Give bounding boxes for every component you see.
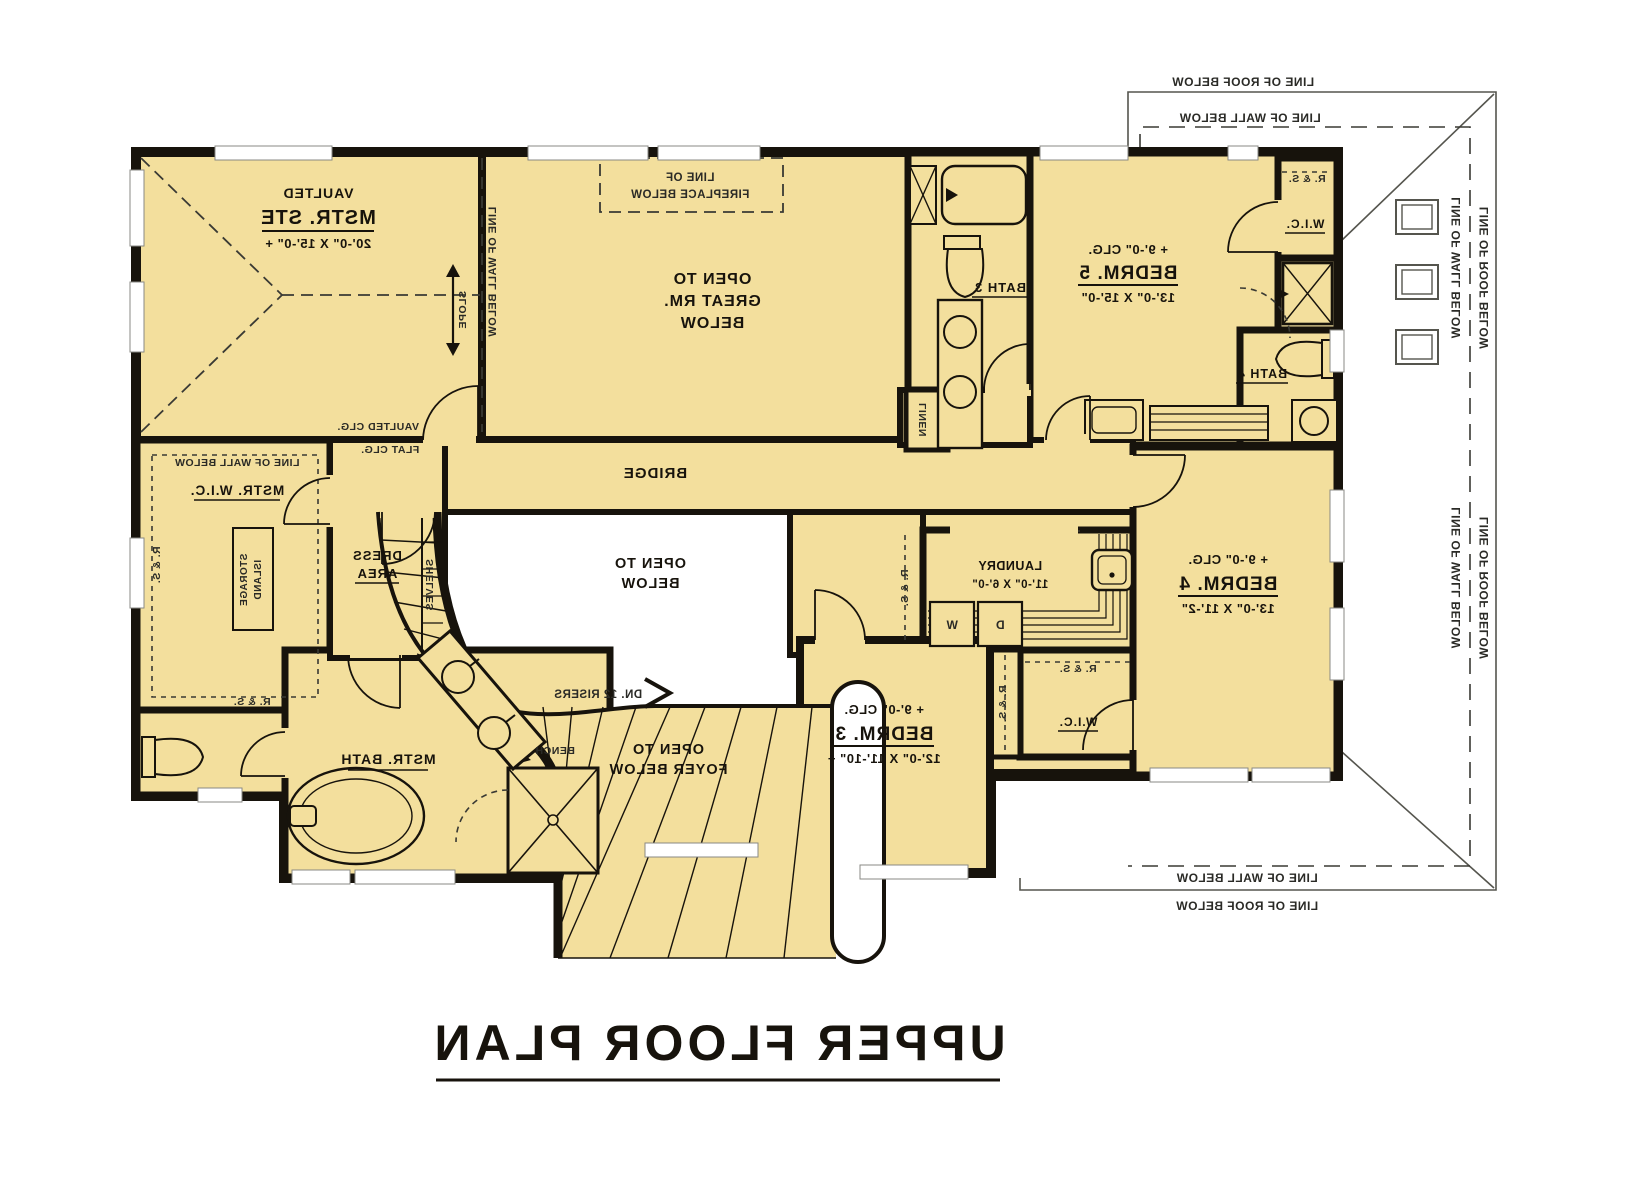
label-wall-below-wic: LINE OF WALL BELOW [175, 457, 300, 469]
room-bridge [390, 440, 1133, 512]
label-greatrm-3: BELOW [680, 315, 745, 332]
label-slope: SLOPE [457, 291, 469, 329]
label-bedrm4-name: BEDRM. 4 [1179, 574, 1278, 595]
label-rs-1: R. & S. [151, 546, 163, 583]
porch-column-icon [1396, 200, 1438, 364]
label-roof-below-right-2: LINE OF ROOF BELOW [1477, 517, 1491, 659]
label-vaulted-clg: VAULTED CLG. [337, 421, 419, 433]
label-fireplace-1: LINE OF [666, 172, 715, 184]
label-openfoyer-2: FOYER BELOW [609, 762, 728, 778]
toilet-icon [142, 737, 203, 777]
label-island: ISLAND [253, 560, 264, 600]
label-rs-4: R. & S. [1059, 663, 1096, 675]
label-bedrm5-dims: 13'-0" X 15'-0" [1081, 290, 1175, 305]
label-flat-clg: FLAT CLG. [361, 444, 420, 456]
label-rs-3: R. & S. [1288, 173, 1325, 185]
label-rs-6: R. & S. [899, 569, 911, 606]
sink-icon [1300, 407, 1328, 435]
label-bedrm3-clg: + 9'-0" CLG. [844, 702, 924, 717]
label-openbelow-1: OPEN TO [614, 556, 686, 572]
sink-icon [944, 376, 976, 408]
label-bridge: BRIDGE [623, 465, 687, 482]
drawing-title: UPPER FLOOR PLAN [430, 1015, 1005, 1080]
label-bedrm5-clg: + 9'-0" CLG. [1088, 242, 1168, 257]
label-greatrm-2: GREAT RM. [663, 293, 761, 310]
floor-plan-drawing: LINE OF ROOF BELOW LINE OF WALL BELOW LI… [0, 0, 1632, 1200]
label-bedrm4-clg: + 9'-0" CLG. [1188, 552, 1268, 567]
label-shelves: SHELVES [424, 559, 436, 611]
label-bedrm3-name: BEDRM. 3 [835, 724, 934, 745]
label-bedrm3-dims: 12'-0" X 11'-10" + [827, 751, 940, 766]
label-mstr-bath: MSTR. BATH [340, 751, 435, 767]
label-bath3: BATH 3 [974, 280, 1026, 295]
toilet-icon [944, 236, 980, 249]
shower-icon [508, 768, 598, 873]
label-roof-below-right-1: LINE OF ROOF BELOW [1477, 207, 1491, 349]
label-bench: BENCH [535, 745, 575, 757]
label-dress-1: DRESS [352, 548, 402, 563]
tub-faucet-icon [290, 806, 316, 826]
floor-plan-page: LINE OF ROOF BELOW LINE OF WALL BELOW LI… [0, 0, 1632, 1200]
label-openfoyer-1: OPEN TO [632, 742, 704, 758]
label-dress-2: AREA [357, 566, 398, 581]
label-dn-12-risers: DN. 12 RISERS [554, 689, 642, 701]
label-storage: STORAGE [239, 554, 250, 607]
label-wall-below-bottom: LINE OF WALL BELOW [1176, 871, 1318, 885]
label-roof-below-bottom: LINE OF ROOF BELOW [1176, 899, 1318, 913]
label-dryer: D [995, 618, 1004, 632]
label-mstrste-dims: 20'-0" X 15'-0" + [265, 236, 371, 251]
label-bath4: BATH 4 [1237, 367, 1287, 381]
label-laundry-name: LAUNDRY [978, 559, 1042, 573]
label-openbelow-2: BELOW [621, 576, 680, 592]
label-rs-2: R. & S. [233, 696, 270, 708]
page-title: UPPER FLOOR PLAN [430, 1015, 1005, 1071]
label-mstrste-name: MSTR. STE [260, 207, 376, 229]
label-wic3: W.I.C. [1059, 715, 1098, 729]
label-rs-5: R. & S. [997, 685, 1009, 722]
label-linen: LINEN [917, 403, 929, 437]
label-wall-below-right-2: LINE OF WALL BELOW [1449, 507, 1463, 649]
label-roof-below-top: LINE OF ROOF BELOW [1172, 75, 1314, 89]
label-wall-below-top: LINE OF WALL BELOW [1179, 111, 1321, 125]
label-wall-below-right-1: LINE OF WALL BELOW [1449, 197, 1463, 339]
label-bedrm4-dims: 13'-0" X 11'-2" [1181, 601, 1274, 616]
label-fireplace-2: FIREPLACE BELOW [631, 189, 750, 201]
label-wall-below-mstrste: LINE OF WALL BELOW [487, 207, 499, 338]
label-bedrm5-name: BEDRM. 5 [1079, 263, 1178, 284]
label-mstrste-tag: VAULTED [282, 185, 353, 201]
label-laundry-dims: 11'-0" X 6'-0" [972, 579, 1048, 591]
window-seat-icon [1085, 400, 1268, 440]
label-greatrm-1: OPEN TO [673, 271, 752, 288]
label-washer: W [946, 618, 958, 632]
label-wic5: W.I.C. [1286, 217, 1325, 231]
label-mstr-wic: MSTR. W.I.C. [190, 483, 285, 498]
sink-icon [944, 316, 976, 348]
